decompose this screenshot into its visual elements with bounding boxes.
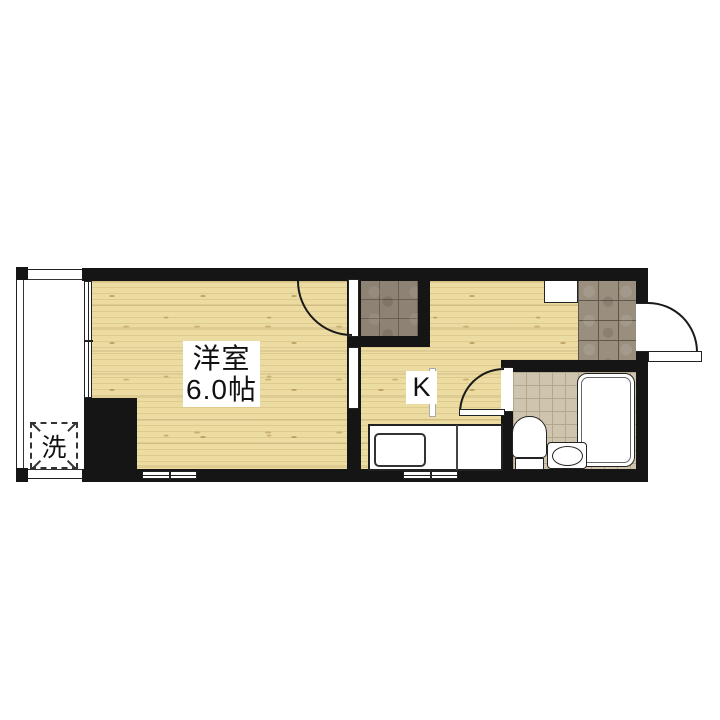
- room-door-leaf-lower: [348, 347, 359, 409]
- kitchen-counter-divider: [456, 425, 458, 470]
- shoe-cabinet: [544, 280, 578, 303]
- laundry-label: 洗: [32, 424, 76, 467]
- western-room-name: 洋室: [192, 343, 250, 374]
- bathtub-inner: [581, 377, 631, 463]
- bath-door-leaf: [459, 409, 505, 416]
- entrance-opening: [636, 303, 648, 352]
- bath-wall-top: [501, 360, 648, 372]
- window-tick: [430, 471, 432, 480]
- balcony-corner-top: [16, 267, 28, 280]
- genkan-floor: [578, 280, 637, 360]
- wall-right-upper: [636, 268, 648, 303]
- floor-plan: 洗 洋室 6.0帖 K: [0, 0, 720, 720]
- window-tick: [84, 340, 93, 342]
- window-bottom-left: [142, 471, 197, 479]
- wall-left-pillar: [84, 398, 137, 472]
- entrance-door-swing-arc: [648, 302, 698, 352]
- balcony-corner-bottom: [16, 468, 28, 482]
- toilet-base: [515, 458, 544, 470]
- kitchen-label: K: [406, 371, 437, 404]
- window-bottom-kitchen: [403, 471, 458, 479]
- washing-machine-pan: 洗: [30, 422, 78, 469]
- window-tick: [169, 471, 171, 480]
- wash-basin-bowl: [552, 446, 583, 466]
- western-room-size: 6.0帖: [186, 374, 257, 405]
- closet-floor: [360, 280, 418, 337]
- kitchen-sink: [374, 433, 426, 467]
- toilet-bowl: [512, 416, 547, 458]
- wall-top: [82, 268, 648, 281]
- window-left-wall: [84, 281, 92, 398]
- western-room-label: 洋室 6.0帖: [183, 341, 260, 407]
- entrance-door-leaf: [648, 351, 702, 362]
- closet-wall-bottom: [347, 336, 430, 347]
